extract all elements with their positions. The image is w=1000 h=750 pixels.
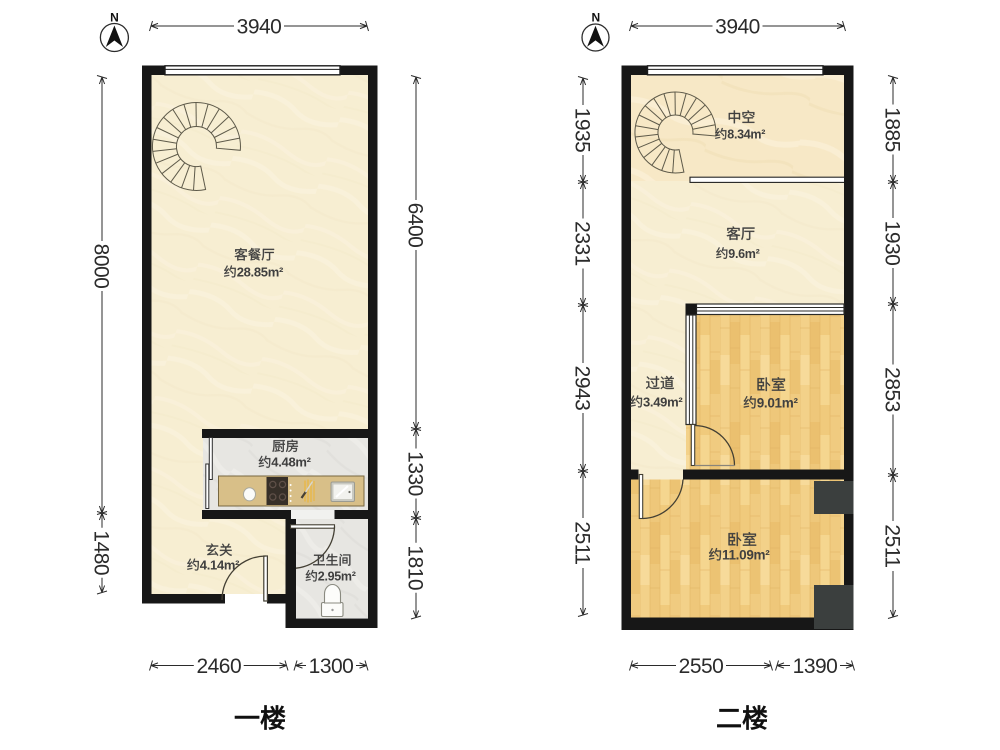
svg-text:2.95m²: 2.95m² [318, 570, 356, 584]
svg-text:1390: 1390 [793, 655, 838, 678]
svg-text:2550: 2550 [679, 655, 724, 678]
svg-text:1480: 1480 [89, 530, 112, 575]
svg-text:2853: 2853 [880, 367, 903, 412]
svg-text:3940: 3940 [715, 16, 760, 39]
svg-text:N: N [591, 11, 600, 25]
svg-text:28.85m²: 28.85m² [237, 264, 284, 279]
svg-text:1810: 1810 [403, 545, 426, 590]
svg-text:11.09m²: 11.09m² [722, 547, 770, 562]
svg-text:1930: 1930 [880, 221, 903, 266]
svg-text:2511: 2511 [570, 521, 593, 564]
svg-text:8000: 8000 [89, 244, 112, 289]
svg-text:4.48m²: 4.48m² [271, 455, 311, 470]
svg-text:9.6m²: 9.6m² [728, 247, 759, 261]
svg-text:2943: 2943 [570, 366, 593, 411]
svg-text:3.49m²: 3.49m² [643, 394, 683, 409]
svg-text:2511: 2511 [880, 524, 903, 567]
svg-text:6400: 6400 [403, 203, 426, 248]
svg-text:1885: 1885 [880, 107, 903, 152]
svg-text:1300: 1300 [309, 655, 354, 678]
svg-text:8.34m²: 8.34m² [727, 128, 765, 142]
svg-text:1330: 1330 [403, 451, 426, 496]
svg-text:N: N [110, 11, 119, 25]
svg-text:1935: 1935 [570, 108, 593, 153]
svg-text:4.14m²: 4.14m² [200, 558, 240, 573]
svg-text:2331: 2331 [570, 221, 593, 266]
svg-text:9.01m²: 9.01m² [757, 395, 799, 410]
svg-text:2460: 2460 [196, 655, 241, 678]
svg-text:3940: 3940 [237, 16, 282, 39]
